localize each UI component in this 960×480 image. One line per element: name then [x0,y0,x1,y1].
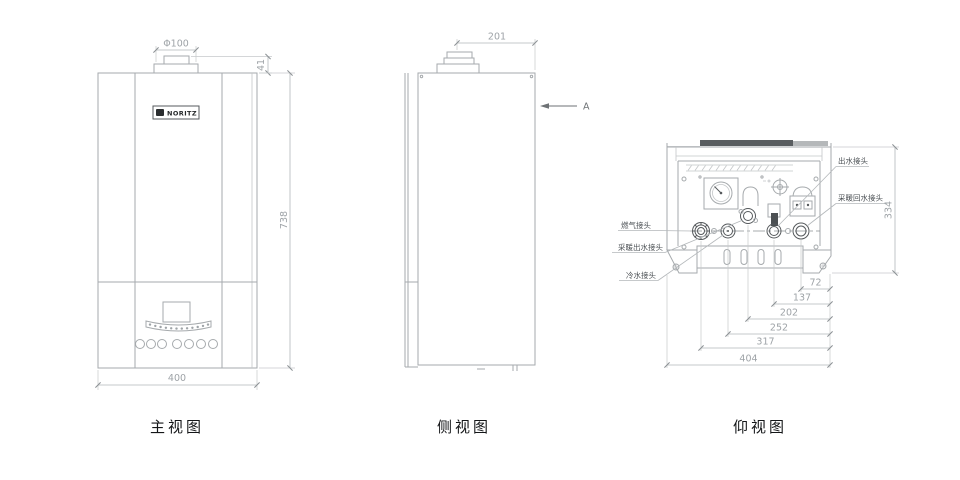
dim-body-height: 738 [279,211,290,229]
control-panel [136,302,218,349]
dim-252: 252 [770,323,788,334]
bottom-view-case [667,140,831,250]
caption-front-view: 主视图 [150,418,204,436]
dim-317: 317 [756,337,774,348]
hatch-band [688,166,776,171]
panel-buttons-row [136,340,218,349]
front-view-body-outline [98,56,257,368]
caption-bottom-view: 仰视图 [733,418,787,436]
section-arrow-label: A [583,102,590,113]
dim-137: 137 [793,293,811,304]
vent-valve [763,178,789,196]
dim-334: 334 [884,201,895,219]
dim-404: 404 [739,354,757,365]
dim-body-width: 400 [168,373,186,384]
dim-202: 202 [780,308,798,319]
front-view-dimensions: Φ100 41 738 400 [98,39,295,391]
three-view-drawing: NORITZ Φ100 [0,0,960,480]
label-gas-connection: 燃气接头 [621,220,651,230]
noritz-logo-icon [156,109,164,116]
heating-outlet-port [739,209,758,224]
noritz-logo-text: NORITZ [167,110,197,118]
dim-72: 72 [809,278,821,289]
view-captions: 主视图 侧视图 仰视图 [150,418,787,436]
front-view: NORITZ Φ100 [98,39,295,391]
mounting-brackets [667,250,831,273]
bottom-view: 燃气接头 采暖出水接头 冷水接头 出水接头 采暖回水接头 72 [612,140,899,368]
section-view-arrow: A [540,102,590,113]
pressure-gauge [704,178,738,209]
technical-drawing-canvas: NORITZ Φ100 [0,0,960,480]
slotted-cover [697,246,803,268]
connection-leaders: 燃气接头 采暖出水接头 冷水接头 出水接头 采暖回水接头 [612,156,887,281]
label-hot-water-connection: 出水接头 [838,156,868,166]
label-heating-outlet-connection: 采暖出水接头 [618,242,663,252]
top-section-bar-light [793,141,828,146]
top-section-bar-dark [700,140,793,146]
display-screen [163,302,190,322]
dim-flue-diameter: Φ100 [163,39,189,50]
side-view-outline [405,52,535,371]
arrow-left-icon [540,103,549,109]
bell-bracket [743,187,758,206]
caption-side-view: 侧视图 [437,418,491,436]
noritz-logo: NORITZ [153,106,199,119]
dim-depth: 201 [488,32,506,43]
side-view: 201 A [405,32,590,372]
relief-valve [768,204,780,226]
dim-flue-height: 41 [256,59,267,71]
label-cold-water-connection: 冷水接头 [626,270,656,280]
label-heating-return-connection: 采暖回水接头 [838,193,883,203]
